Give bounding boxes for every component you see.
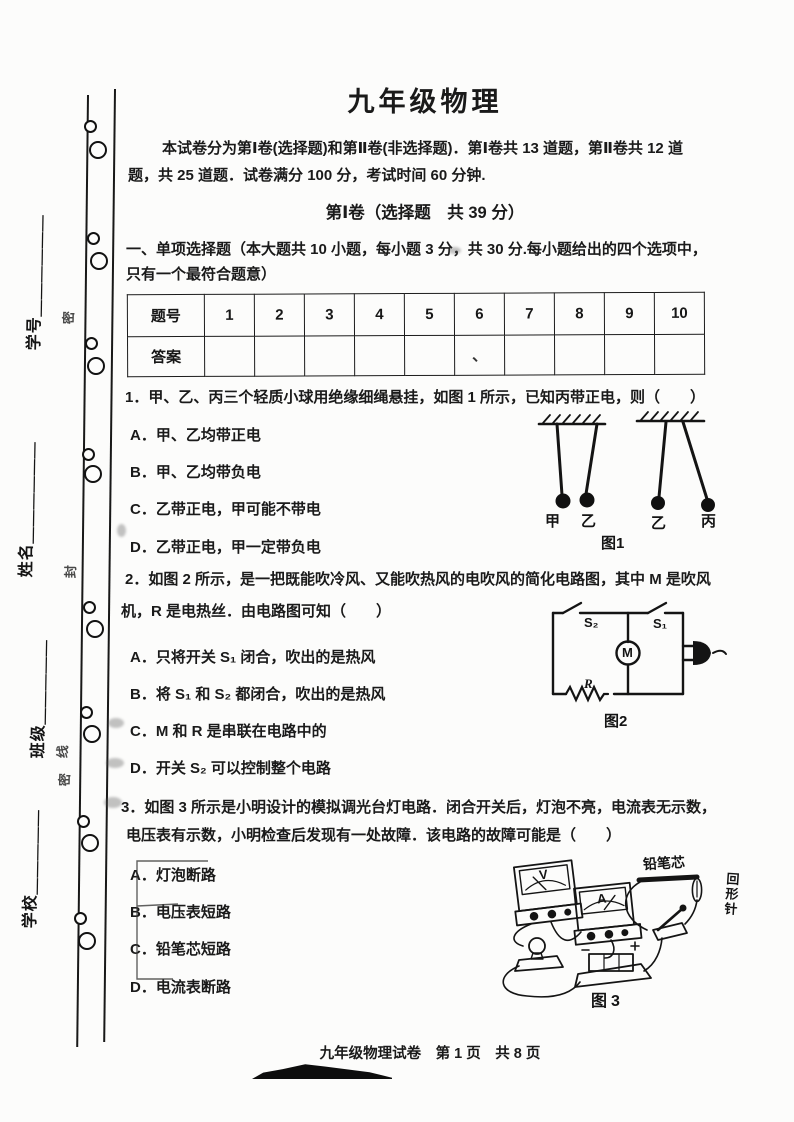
fig3-pencil-lead-label: 铅笔芯 bbox=[643, 852, 686, 874]
page-footer: 九年级物理试卷 第 1 页 共 8 页 bbox=[130, 1042, 730, 1063]
question-number-cell: 7 bbox=[504, 293, 554, 335]
seal-char: 密 bbox=[54, 773, 73, 786]
question-number-cell: 3 bbox=[304, 294, 354, 336]
fig1-label-yi-right: 乙 bbox=[651, 512, 666, 533]
fig2-switch-s1-label: S₁ bbox=[653, 616, 667, 631]
seal-char: 密 bbox=[58, 311, 77, 324]
punch-hole bbox=[87, 232, 100, 245]
question-number-cell: 10 bbox=[654, 292, 704, 334]
fig3-meter-a-label: A bbox=[596, 891, 607, 907]
q1-option-a: A．甲、乙均带正电 bbox=[130, 424, 261, 445]
scan-ink-blob bbox=[252, 1063, 392, 1079]
margin-field-name: 姓名＿＿＿＿＿＿ bbox=[12, 441, 38, 577]
part1-heading-line-1: 一、单项选择题（本大题共 10 小题，每小题 3 分，共 30 分.每小题给出的… bbox=[126, 238, 707, 259]
fig3-caption: 图3 bbox=[591, 987, 624, 1011]
margin-field-class: 班级＿＿＿＿＿ bbox=[24, 639, 50, 758]
seal-line-right bbox=[103, 89, 116, 1042]
q2-option-a: A．只将开关 S₁ 闭合，吹出的是热风 bbox=[130, 646, 375, 667]
answer-table: 题号 1 2 3 4 5 6 7 8 9 10 答案 、 bbox=[127, 293, 705, 376]
punch-hole bbox=[89, 141, 107, 159]
figure-2-drawing bbox=[536, 596, 736, 738]
punch-hole bbox=[82, 448, 95, 461]
intro-line-1: 本试卷分为第Ⅰ卷(选择题)和第Ⅱ卷(非选择题)．第Ⅰ卷共 13 道题，第Ⅱ卷共 … bbox=[162, 137, 683, 158]
scan-smudge bbox=[117, 524, 126, 537]
answer-cell bbox=[205, 336, 255, 376]
punch-hole bbox=[78, 932, 96, 950]
fig1-label-bing: 丙 bbox=[701, 510, 716, 531]
q1-option-b: B．甲、乙均带负电 bbox=[130, 461, 261, 482]
scan-smudge bbox=[108, 718, 124, 728]
question-number-cell: 2 bbox=[254, 294, 304, 336]
punch-hole bbox=[84, 120, 97, 133]
answer-cell bbox=[405, 335, 455, 375]
punch-hole bbox=[81, 834, 99, 852]
section-title: 第Ⅰ卷（选择题 共 39 分） bbox=[125, 199, 725, 223]
q2-option-c: C．M 和 R 是串联在电路中的 bbox=[130, 720, 327, 741]
answer-cell bbox=[655, 334, 705, 374]
seal-char: 线 bbox=[52, 745, 71, 758]
punch-hole bbox=[86, 620, 104, 638]
answer-cell bbox=[555, 335, 605, 375]
punch-hole bbox=[83, 601, 96, 614]
punch-hole bbox=[90, 252, 108, 270]
answer-cell bbox=[605, 334, 655, 374]
answer-cell bbox=[255, 336, 305, 376]
table-corner-label: 题号 bbox=[127, 294, 204, 336]
fig2-resistor-label: R bbox=[584, 676, 593, 692]
punch-hole bbox=[77, 815, 90, 828]
figure-1-pendulum-balls: 甲 乙 乙 丙 图1 bbox=[527, 407, 745, 552]
punch-hole bbox=[84, 465, 102, 483]
q3-stem-line-1: 3．如图 3 所示是小明设计的模拟调光台灯电路．闭合开关后，灯泡不亮，电流表无示… bbox=[121, 796, 716, 817]
question-number-cell: 4 bbox=[354, 294, 404, 336]
punch-hole bbox=[80, 706, 93, 719]
fig1-label-yi-left: 乙 bbox=[581, 510, 596, 531]
q2-stem-line-1: 2．如图 2 所示，是一把既能吹冷风、又能吹热风的电吹风的简化电路图，其中 M … bbox=[125, 568, 711, 589]
question-number-cell: 1 bbox=[204, 294, 254, 336]
answer-cell-stray-mark: 、 bbox=[455, 335, 505, 375]
q1-option-d: D．乙带正电，甲一定带负电 bbox=[130, 536, 321, 557]
pen-bracket-artifact bbox=[128, 854, 220, 986]
margin-field-school: 学校＿＿＿＿＿ bbox=[16, 809, 42, 928]
fig2-caption: 图2 bbox=[604, 710, 627, 731]
answer-cell bbox=[505, 335, 555, 375]
intro-line-2: 题，共 25 道题．试卷满分 100 分，考试时间 60 分钟. bbox=[128, 164, 486, 185]
part1-heading-line-2: 只有一个最符合题意） bbox=[126, 263, 276, 284]
punch-hole bbox=[83, 725, 101, 743]
q1-option-c: C．乙带正电，甲可能不带电 bbox=[130, 498, 321, 519]
seal-char: 封 bbox=[60, 565, 79, 578]
fig3-paperclip-label: 回形针 bbox=[719, 871, 742, 928]
scan-smudge bbox=[106, 758, 124, 768]
margin-field-student-id: 学号＿＿＿＿＿＿ bbox=[20, 214, 46, 350]
table-answer-label: 答案 bbox=[128, 336, 205, 376]
question-number-cell: 8 bbox=[554, 293, 604, 335]
punch-hole bbox=[87, 357, 105, 375]
fig1-caption: 图1 bbox=[601, 532, 624, 553]
answer-cell bbox=[355, 336, 405, 376]
fig3-meter-v-label: V bbox=[538, 867, 548, 883]
page-title: 九年级物理 bbox=[125, 80, 725, 119]
answer-cell bbox=[305, 336, 355, 376]
q2-option-d: D．开关 S₂ 可以控制整个电路 bbox=[130, 757, 331, 778]
question-number-cell: 9 bbox=[604, 292, 654, 334]
question-number-cell: 5 bbox=[404, 293, 454, 335]
q2-stem-line-2: 机，R 是电热丝．由电路图可知（ ） bbox=[121, 600, 391, 621]
q1-stem: 1．甲、乙、丙三个轻质小球用绝缘细绳悬挂，如图 1 所示，已知丙带正电，则（ ） bbox=[125, 386, 705, 407]
figure-2-circuit: S₂ S₁ M R 图2 bbox=[536, 596, 736, 738]
exam-paper-page: 学号＿＿＿＿＿＿ 姓名＿＿＿＿＿＿ 班级＿＿＿＿＿ 学校＿＿＿＿＿ 密 封 线 … bbox=[0, 0, 794, 1122]
scan-smudge bbox=[448, 247, 461, 254]
punch-hole bbox=[85, 337, 98, 350]
q3-stem-line-2: 电压表有示数，小明检查后发现有一处故障．该电路的故障可能是（ ） bbox=[126, 824, 621, 845]
scan-smudge bbox=[104, 797, 122, 808]
figure-3-experiment: V A 铅笔芯 回形针 图3 bbox=[481, 846, 773, 1014]
q2-option-b: B．将 S₁ 和 S₂ 都闭合，吹出的是热风 bbox=[130, 683, 385, 704]
fig2-motor-label: M bbox=[622, 645, 633, 660]
question-number-cell: 6 bbox=[454, 293, 504, 335]
fig2-switch-s2-label: S₂ bbox=[584, 615, 598, 630]
punch-hole bbox=[74, 912, 87, 925]
fig1-label-jia: 甲 bbox=[545, 510, 560, 531]
